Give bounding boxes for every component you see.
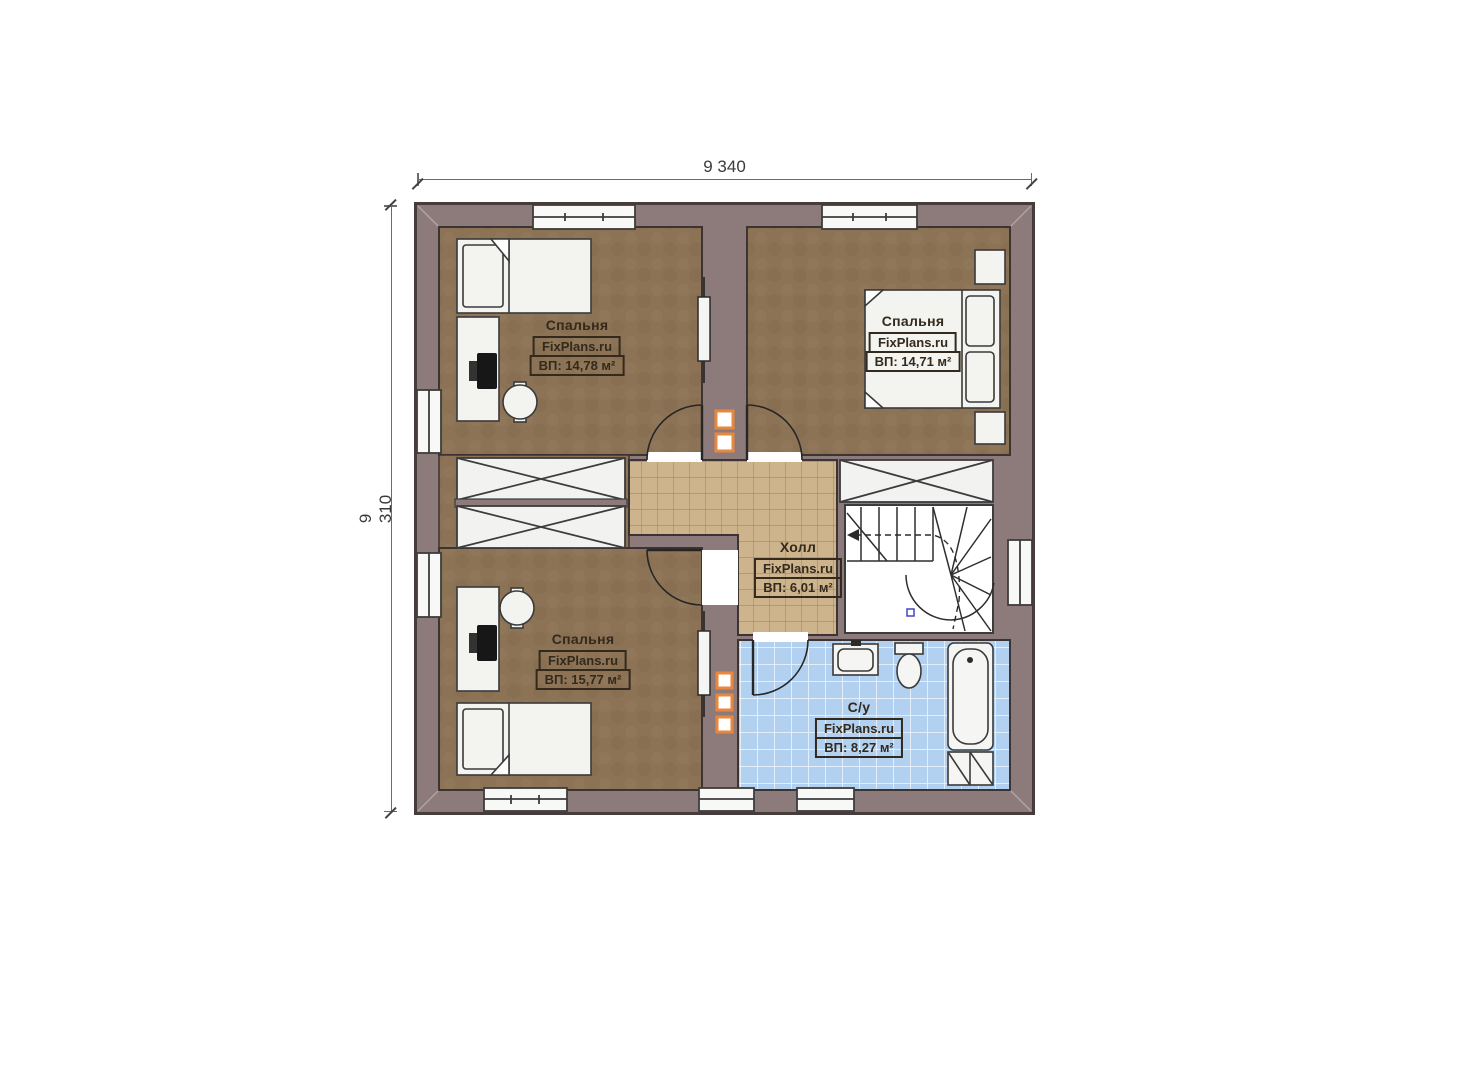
room-name: С/у (848, 699, 871, 715)
room-name: Холл (780, 539, 816, 555)
room-label-bathroom: С/у FixPlans.ru ВП: 8,27 м² (815, 699, 903, 758)
room-label-bedroom-top-right: Спальня FixPlans.ru ВП: 14,71 м² (866, 313, 961, 372)
room-label-bedroom-top-left: Спальня FixPlans.ru ВП: 14,78 м² (530, 317, 625, 376)
window-right (1008, 540, 1032, 605)
room-area: ВП: 8,27 м² (815, 737, 903, 758)
window-bottom-right (797, 788, 854, 811)
room-name: Спальня (882, 313, 945, 329)
dimension-top: 9 340 (417, 158, 1032, 186)
desk-computer (469, 361, 477, 381)
room-brand: FixPlans.ru (533, 336, 621, 357)
room-brand: FixPlans.ru (869, 332, 957, 353)
room-name: Спальня (552, 631, 615, 647)
window-left-upper (417, 390, 441, 453)
room-name: Спальня (546, 317, 609, 333)
room-area: ВП: 14,78 м² (530, 355, 625, 376)
room-brand: FixPlans.ru (539, 650, 627, 671)
bathroom-cabinet (948, 752, 993, 785)
dimension-left-value: 9 310 (356, 486, 396, 530)
desk-computer (477, 625, 497, 661)
desk-computer (469, 633, 477, 653)
room-label-hall: Холл FixPlans.ru ВП: 6,01 м² (754, 539, 842, 598)
staircase (845, 505, 994, 633)
room-area: ВП: 14,71 м² (866, 351, 961, 372)
toilet (895, 643, 923, 688)
bed-single-top-left (457, 239, 591, 313)
window-top-right (822, 205, 917, 229)
nightstand-upper (975, 250, 1005, 284)
room-area: ВП: 15,77 м² (536, 669, 631, 690)
room-label-bedroom-bottom-left: Спальня FixPlans.ru ВП: 15,77 м² (536, 631, 631, 690)
desk-top-left (457, 317, 499, 421)
desk-bottom-left (457, 587, 499, 691)
window-bottom-middle (699, 788, 754, 811)
dimension-line (391, 205, 392, 812)
window-top-left (533, 205, 635, 229)
floor-plan: Спальня FixPlans.ru ВП: 14,78 м² Спальня… (417, 205, 1032, 812)
window-left-lower (417, 553, 441, 617)
room-area: ВП: 6,01 м² (754, 577, 842, 598)
bed-single-bottom-left (457, 703, 591, 775)
desk-computer (477, 353, 497, 389)
dimension-left: 9 310 (372, 205, 400, 812)
window-bottom-left (484, 788, 567, 811)
sink (833, 640, 878, 675)
dimension-top-value: 9 340 (695, 157, 754, 177)
bathtub (948, 643, 993, 750)
nightstand-lower (975, 412, 1005, 444)
room-brand: FixPlans.ru (754, 558, 842, 579)
plan-drawing (417, 205, 1032, 812)
room-brand: FixPlans.ru (815, 718, 903, 739)
floor-plan-page: 9 340 9 310 (0, 0, 1473, 1080)
dimension-line (417, 179, 1032, 180)
